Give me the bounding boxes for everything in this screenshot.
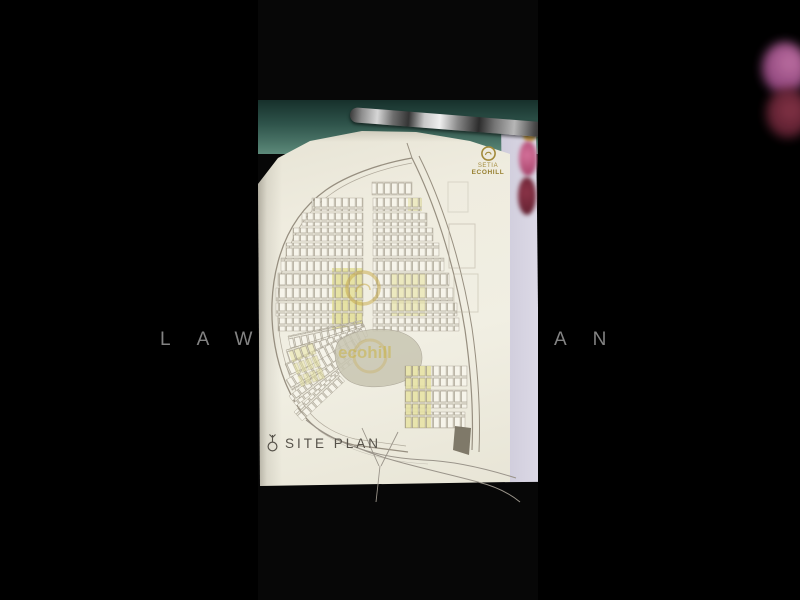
background-blur-object-red xyxy=(766,88,800,138)
brand-name-bottom: ECOHILL xyxy=(456,169,520,176)
center-watermark-text: ecohill xyxy=(338,343,392,362)
site-plan-photo: ecohill SETIA ECOHILL SITE PLAN xyxy=(258,0,538,600)
brand-logo: SETIA ECOHILL xyxy=(456,145,520,176)
site-plan-caption: SITE PLAN xyxy=(285,436,381,451)
background-blur-object-pink xyxy=(762,42,800,94)
watermark-text-right: AN xyxy=(554,329,632,351)
site-plan-caption-row: SITE PLAN xyxy=(265,433,381,453)
letterboxed-photo-stage: LAW AN xyxy=(0,0,800,600)
brand-logo-icon xyxy=(480,145,497,162)
north-arrow-icon xyxy=(265,433,280,453)
site-plan-drawing: ecohill xyxy=(258,0,538,600)
